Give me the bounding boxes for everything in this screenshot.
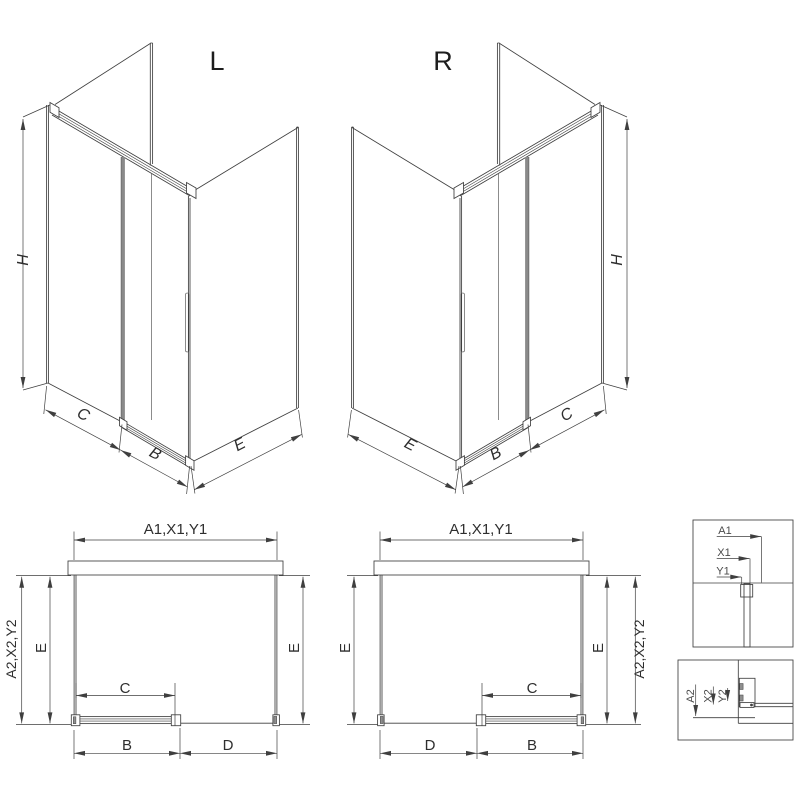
variant-label-right: R xyxy=(433,46,453,76)
fastener-dot xyxy=(750,704,753,707)
dim-label-d: D xyxy=(223,737,234,754)
dim-label-d: D xyxy=(425,737,436,754)
plan-view-right: A1,X1,Y1 E E A2,X2,Y2 C D B xyxy=(335,515,657,770)
detail-top-profile: A1 X1 Y1 xyxy=(685,515,800,650)
plan-view-left: A1,X1,Y1 A2,X2,Y2 E E C B D xyxy=(0,515,322,770)
dim-label-y1: Y1 xyxy=(716,566,729,578)
wall-profile-bracket xyxy=(741,585,753,598)
dim-label-h: H xyxy=(15,254,32,266)
dim-label-b: B xyxy=(122,737,132,754)
dim-label-e-right: E xyxy=(590,643,607,653)
dim-label-x2: X2 xyxy=(703,689,715,702)
dim-label-e: E xyxy=(401,435,419,455)
dim-label-e-right: E xyxy=(286,643,303,653)
detail-frame xyxy=(693,520,793,647)
dim-label-c: C xyxy=(527,680,538,697)
dim-label-h: H xyxy=(609,254,626,266)
iso-geometry-right xyxy=(348,43,627,494)
dim-label-a2x2y2: A2,X2,Y2 xyxy=(631,619,647,678)
variant-label-left: L xyxy=(209,46,224,76)
dim-label-e-left: E xyxy=(33,643,50,653)
iso-view-right: R H E B C xyxy=(330,30,640,500)
dim-label-a2: A2 xyxy=(685,689,697,702)
dim-label-b: B xyxy=(527,737,537,754)
dim-label-c: C xyxy=(558,405,577,426)
dim-label-x1: X1 xyxy=(717,547,730,559)
seal-block-upper xyxy=(740,684,743,690)
shower-enclosure-technical-drawing: L H C B E R H E B C A1,X1,Y1 A2,X2,Y2 E … xyxy=(0,0,800,800)
glass-edge-section xyxy=(744,584,750,648)
dim-label-a1: A1 xyxy=(718,525,731,537)
dim-label-a1x1y1: A1,X1,Y1 xyxy=(144,521,207,538)
dim-label-c: C xyxy=(120,680,131,697)
seal-block-lower xyxy=(740,695,743,701)
dim-label-a2x2y2: A2,X2,Y2 xyxy=(3,619,19,678)
iso-geometry-left xyxy=(23,43,302,494)
dim-label-e-left: E xyxy=(337,643,354,653)
detail-bottom-profile: A2 X2 Y2 xyxy=(675,655,795,745)
dim-label-c: C xyxy=(74,405,93,426)
iso-view-left: L H C B E xyxy=(10,30,320,500)
dim-label-b: B xyxy=(146,444,164,464)
dim-label-e: E xyxy=(231,435,249,455)
dim-label-y2: Y2 xyxy=(717,689,729,702)
dim-label-b: B xyxy=(487,444,505,464)
dim-label-a1x1y1: A1,X1,Y1 xyxy=(449,521,512,538)
plan-geometry-left xyxy=(16,532,310,760)
